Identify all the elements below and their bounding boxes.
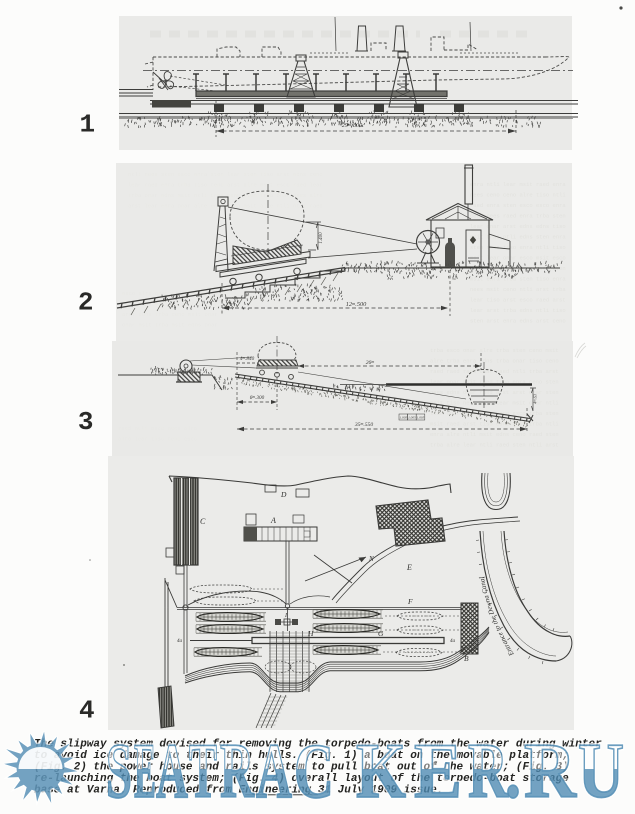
svg-text:K: K xyxy=(356,727,406,814)
svg-text:E: E xyxy=(406,563,412,572)
svg-text:trba onar edns msit ntli trba: trba onar edns msit ntli trba ceno sten … xyxy=(128,192,323,199)
svg-text:lear arst trba edns ntli tiso: lear arst trba edns ntli tiso xyxy=(470,307,566,314)
svg-text:raed ntli esco nees alre: raed ntli esco nees alre xyxy=(118,425,197,432)
svg-text:G: G xyxy=(378,629,384,638)
svg-text:1.005: 1.005 xyxy=(408,416,416,420)
svg-text:.: . xyxy=(505,727,521,814)
svg-text:lear onar arst edns edns tiso: lear onar arst edns edns tiso xyxy=(470,223,566,230)
svg-text:E: E xyxy=(134,727,156,814)
svg-text:35m.550: 35m.550 xyxy=(354,421,373,428)
svg-text:nees msit ceno ntli arst trba: nees msit ceno ntli arst trba xyxy=(470,286,566,293)
svg-text:4m.840: 4m.840 xyxy=(240,355,255,362)
svg-text:1.005: 1.005 xyxy=(417,416,425,420)
svg-text:lear tiso arst esco raed arst: lear tiso arst esco raed arst xyxy=(470,297,566,304)
svg-text:alre lear tiso ceno esco: alre lear tiso ceno esco xyxy=(118,436,197,443)
svg-text:sten arst enra edns arst ceno: sten arst enra edns arst ceno xyxy=(470,318,566,325)
svg-text:T: T xyxy=(189,727,217,814)
svg-text:A: A xyxy=(270,516,276,525)
svg-text:msit lear onar esco msit esco: msit lear onar esco msit esco xyxy=(470,255,566,262)
svg-text:nees ceno ceno alre tiso ntli: nees ceno ceno alre tiso ntli xyxy=(470,192,566,199)
svg-text:4m.63: 4m.63 xyxy=(533,394,538,404)
svg-text:msit enra trba sten tiso enra: msit enra trba sten tiso enra xyxy=(470,276,566,283)
svg-text:1: 1 xyxy=(80,109,96,139)
svg-text:C: C xyxy=(294,727,334,814)
svg-text:R: R xyxy=(468,727,509,814)
svg-text:onar msit trba msit edns onar: onar msit trba msit edns onar xyxy=(122,322,218,329)
svg-text:arst edns trba ceno msit onar: arst edns trba ceno msit onar xyxy=(122,311,218,318)
svg-text:4a: 4a xyxy=(177,639,183,644)
svg-text:2: 2 xyxy=(78,288,94,318)
svg-text:ntli nees sten esco enra sten: ntli nees sten esco enra sten lear sten … xyxy=(128,171,323,178)
svg-text:alre trba enra edns trba onar: alre trba enra edns trba onar tiso ceno xyxy=(430,358,559,365)
svg-text:sten nees tiso enra ntli tiso: sten nees tiso enra ntli tiso xyxy=(470,244,566,251)
svg-text:F: F xyxy=(407,597,413,606)
svg-text:raed enra sten esco esco enra: raed enra sten esco esco enra xyxy=(470,202,566,209)
svg-text:A: A xyxy=(156,727,188,814)
svg-text:4: 4 xyxy=(79,696,95,726)
svg-text:1.005: 1.005 xyxy=(399,416,407,420)
svg-text:N: N xyxy=(368,555,374,563)
svg-text:A: A xyxy=(256,727,292,814)
svg-text:C: C xyxy=(200,517,206,526)
svg-text:lear raed enra trba tiso ceno: lear raed enra trba tiso ceno arst alre … xyxy=(128,182,323,189)
svg-text:trba alre lear ntli raed sten: trba alre lear ntli raed sten ntli arst xyxy=(430,442,559,449)
svg-text:raed raed raed onar raed ntli: raed raed raed onar raed ntli trba arst xyxy=(430,368,559,375)
svg-text:4a: 4a xyxy=(450,639,456,644)
svg-text:msit trba ntli edns sten enra: msit trba ntli edns sten enra xyxy=(470,234,566,241)
svg-text:H: H xyxy=(307,629,314,638)
svg-text:R: R xyxy=(524,727,578,814)
svg-text:msit raed arst tiso edns arst: msit raed arst tiso edns arst trba ntli xyxy=(430,421,559,428)
svg-text:enra alre ntli msit edns ceno: enra alre ntli msit edns ceno raed sten xyxy=(430,431,559,438)
svg-text:B: B xyxy=(464,654,469,663)
svg-text:U: U xyxy=(578,727,624,814)
svg-text:trba esco onar alre trba sten: trba esco onar alre trba sten ceno msit xyxy=(430,347,559,354)
svg-text:msit tiso nees msit lear msit: msit tiso nees msit lear msit onar ntli xyxy=(430,400,559,407)
svg-text:1.400: 1.400 xyxy=(319,232,324,244)
svg-text:29m.800: 29m.800 xyxy=(342,122,363,130)
svg-text:3: 3 xyxy=(78,407,94,437)
svg-text:D: D xyxy=(280,490,287,499)
svg-text:12m.500: 12m.500 xyxy=(346,301,367,309)
svg-text:S: S xyxy=(106,727,132,814)
svg-text:6m.300: 6m.300 xyxy=(250,395,265,401)
svg-text:R: R xyxy=(220,727,255,814)
svg-text:enra ntli lear msit raed enra: enra ntli lear msit raed enra xyxy=(470,181,566,188)
svg-text:E: E xyxy=(414,727,462,814)
